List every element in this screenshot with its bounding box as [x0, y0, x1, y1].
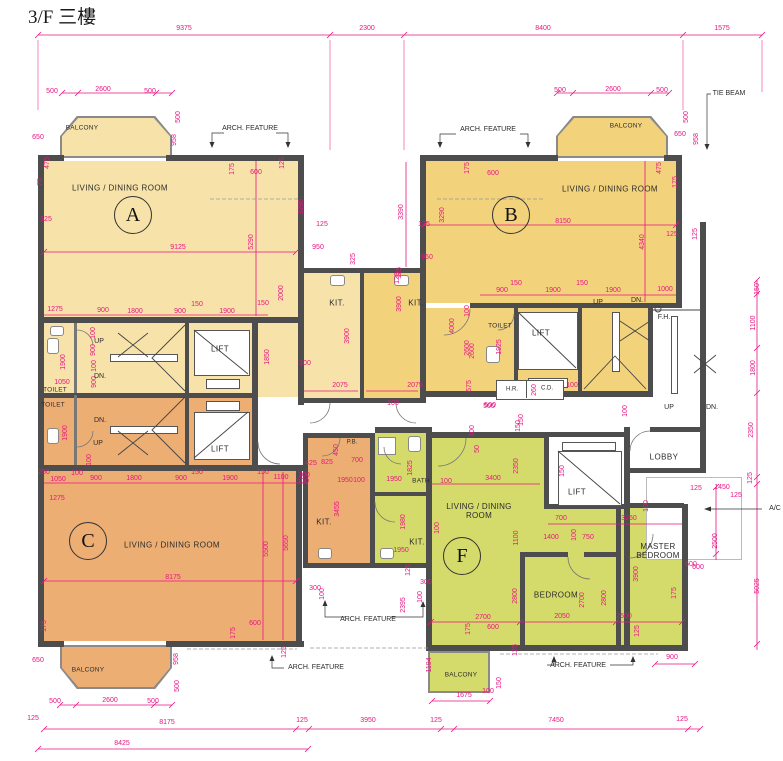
- stair-c-rail: [110, 426, 178, 434]
- wall-a-top-2: [166, 155, 304, 161]
- wall-c-bottom-1: [38, 641, 64, 647]
- dim-300: 300: [309, 585, 321, 593]
- unit-c-balcony: [60, 645, 172, 689]
- wc-toilet-a: [47, 338, 59, 354]
- sink-kitchen-a: [330, 275, 345, 286]
- dim-125: 125: [296, 717, 308, 725]
- unit-b-balcony: [556, 116, 668, 158]
- dim-1575: 1575: [714, 25, 730, 33]
- wall-bedroom-right: [616, 508, 621, 650]
- floor-title: 3/F 三樓: [28, 2, 96, 29]
- unit-a-toilet-lobby: [77, 323, 99, 393]
- dim-950: 950: [312, 244, 324, 252]
- wall-lobby-bottom: [626, 468, 706, 473]
- unit-a-living-room: [44, 161, 298, 317]
- floor-plan: 3/F 三樓 9375230084001575BALCONY5002600500…: [0, 0, 783, 761]
- tie-beam-label: TIE BEAM: [713, 90, 746, 98]
- dim-1100: 1100: [750, 315, 758, 330]
- dim-125: 125: [281, 646, 289, 658]
- unit-b-kitchen: [364, 273, 420, 398]
- unit-f-balcony: [428, 651, 490, 693]
- dim-650: 650: [674, 131, 686, 139]
- wall-toilet-c-div: [74, 395, 77, 465]
- dim-958: 958: [171, 134, 179, 146]
- wall-ckit-top: [303, 433, 375, 438]
- dim-900: 900: [666, 654, 678, 662]
- wall-ckit-left: [303, 433, 308, 568]
- lobby-label: LOBBY: [650, 452, 679, 461]
- wall-band-bottom: [38, 465, 304, 471]
- dim-2600: 2600: [95, 86, 111, 94]
- unit-c-kitchen: [308, 438, 370, 563]
- wall-f-lift-right: [624, 427, 630, 650]
- unit-c-living-room: [44, 471, 296, 641]
- dim-125: 125: [692, 228, 700, 240]
- wall-f-bottom: [426, 645, 688, 651]
- lift-a-car: [194, 330, 250, 376]
- wall-f-top: [426, 432, 546, 438]
- dim-1800: 1800: [750, 360, 758, 376]
- dim-7450: 7450: [548, 717, 564, 725]
- dim-2395: 2395: [400, 597, 408, 613]
- dim-150: 150: [518, 414, 526, 426]
- stair-a-rail: [110, 354, 178, 362]
- wc-toilet-b: [486, 346, 500, 363]
- lift-f-counterweight: [562, 442, 616, 451]
- wall-kitchen-bottom: [298, 398, 426, 403]
- dim-8175: 8175: [159, 719, 175, 727]
- dim-500: 500: [175, 111, 183, 123]
- lift-f-car: [558, 451, 622, 506]
- dim-2350: 2350: [748, 422, 756, 438]
- wall-band-mid: [38, 393, 258, 398]
- dim-8425: 8425: [114, 740, 130, 748]
- hr-cd-divider: [526, 380, 527, 398]
- lift-b-car: [518, 312, 578, 370]
- wall-c-bottom-2: [166, 641, 304, 647]
- wall-b-lift-right: [578, 308, 582, 391]
- unit-c-toilet-lobby: [77, 397, 99, 465]
- sink-kitchen-f: [380, 548, 394, 559]
- ext-stair-up: UP: [664, 404, 674, 412]
- dim-8400: 8400: [535, 25, 551, 33]
- wall-gap-right: [420, 155, 426, 402]
- ext-stair-dn: DN.: [706, 404, 718, 412]
- wc-bath-f: [408, 436, 421, 452]
- dim-100: 100: [417, 591, 425, 603]
- wall-gap-left: [298, 155, 304, 405]
- dim-958: 958: [173, 653, 181, 665]
- arch-feature-top-right: ARCH. FEATURE: [460, 126, 516, 134]
- dim-125: 125: [747, 472, 755, 484]
- dim-500: 500: [49, 698, 61, 706]
- dim-650: 650: [32, 657, 44, 665]
- wall-f-left: [426, 427, 432, 651]
- wall-toilet-a-div: [74, 323, 77, 393]
- unit-a-balcony: [60, 116, 172, 158]
- dim-150: 150: [515, 420, 523, 432]
- dim-3390: 3390: [398, 204, 406, 220]
- wall-a-top-1: [38, 155, 64, 161]
- wall-bath-top: [375, 427, 431, 433]
- wall-f-lift-top: [544, 432, 628, 437]
- wc-toilet-c: [47, 428, 59, 444]
- dim-500: 500: [683, 111, 691, 123]
- lift-c-car: [194, 412, 250, 460]
- sink-kitchen-b: [394, 275, 409, 286]
- wall-lobby-top: [650, 427, 700, 432]
- dim-5025: 5025: [754, 578, 762, 594]
- dim-2600: 2600: [102, 697, 118, 705]
- wall-bedroom-left: [520, 552, 525, 650]
- hr-cd-box: [496, 380, 564, 400]
- ext-stair-rail: [671, 316, 678, 394]
- arch-feature-bottom-mid: ARCH. FEATURE: [340, 616, 396, 624]
- dim-325: 325: [350, 253, 358, 265]
- wall-stair-a-right: [185, 323, 189, 393]
- dim-150: 150: [754, 283, 762, 295]
- basin-toilet-a: [50, 326, 64, 336]
- dim-958: 958: [693, 133, 701, 145]
- ac-platform: [646, 477, 742, 560]
- wall-outer-left: [38, 155, 44, 647]
- ac-label: A/C: [769, 505, 781, 513]
- dim-100: 100: [622, 405, 630, 417]
- dim-1675: 1675: [456, 692, 472, 700]
- dim-650: 650: [32, 134, 44, 142]
- wall-bedroom-top-2: [584, 552, 621, 557]
- unit-f-bedroom: [544, 509, 624, 645]
- dim-500: 500: [147, 698, 159, 706]
- dim-500: 500: [484, 402, 496, 410]
- dim-500: 500: [554, 87, 566, 95]
- dim-500: 500: [46, 88, 58, 96]
- wall-mb-top: [628, 503, 684, 508]
- dim-150: 150: [496, 677, 504, 689]
- wall-ckit-right: [370, 433, 375, 568]
- dim-125: 125: [27, 715, 39, 723]
- dim-2600: 2600: [605, 86, 621, 94]
- unit-a-kitchen: [304, 273, 360, 398]
- arch-feature-bottom-right: ARCH. FEATURE: [550, 662, 606, 670]
- dim-125: 125: [430, 717, 442, 725]
- dim-100: 100: [319, 588, 327, 600]
- wall-f-right: [682, 504, 688, 651]
- arch-feature-top-left: ARCH. FEATURE: [222, 125, 278, 133]
- wall-b-right: [676, 155, 682, 308]
- dim-500: 500: [174, 680, 182, 692]
- wall-bedroom-top-1: [520, 552, 568, 557]
- wall-f-lift-left: [544, 432, 549, 509]
- dim-500: 500: [656, 87, 668, 95]
- wall-b-stair-right: [648, 308, 653, 397]
- wall-a-bottom: [38, 317, 304, 323]
- arch-feature-bottom-left: ARCH. FEATURE: [288, 664, 344, 672]
- dim-2300: 2300: [359, 25, 375, 33]
- wall-c-right: [296, 465, 302, 647]
- unit-f-living-room: [431, 438, 544, 645]
- wall-stair-c-right: [185, 395, 189, 465]
- unit-a-corridor: [258, 323, 298, 397]
- stair-b-rail: [612, 312, 620, 372]
- dim-3950: 3950: [360, 717, 376, 725]
- wall-outer-right: [700, 222, 706, 472]
- dim-500: 500: [144, 88, 156, 96]
- dim-125: 125: [676, 716, 688, 724]
- lift-a-counterweight: [206, 379, 240, 389]
- dim-600: 600: [692, 564, 704, 572]
- unit-b-living-room: [426, 161, 676, 303]
- wall-kitchen-mid: [360, 272, 364, 398]
- wall-liftcol-right: [252, 317, 258, 471]
- lift-c-counterweight: [206, 401, 240, 411]
- dim-9375: 9375: [176, 25, 192, 33]
- wall-b-top-1: [424, 155, 558, 161]
- shower-bath-f: [378, 437, 396, 455]
- dim-125: 125: [316, 221, 328, 229]
- wall-ckit-bottom: [303, 563, 431, 568]
- dim-500: 500: [483, 403, 495, 411]
- sink-kitchen-c: [318, 548, 332, 559]
- wall-bath-kit-div: [375, 492, 426, 496]
